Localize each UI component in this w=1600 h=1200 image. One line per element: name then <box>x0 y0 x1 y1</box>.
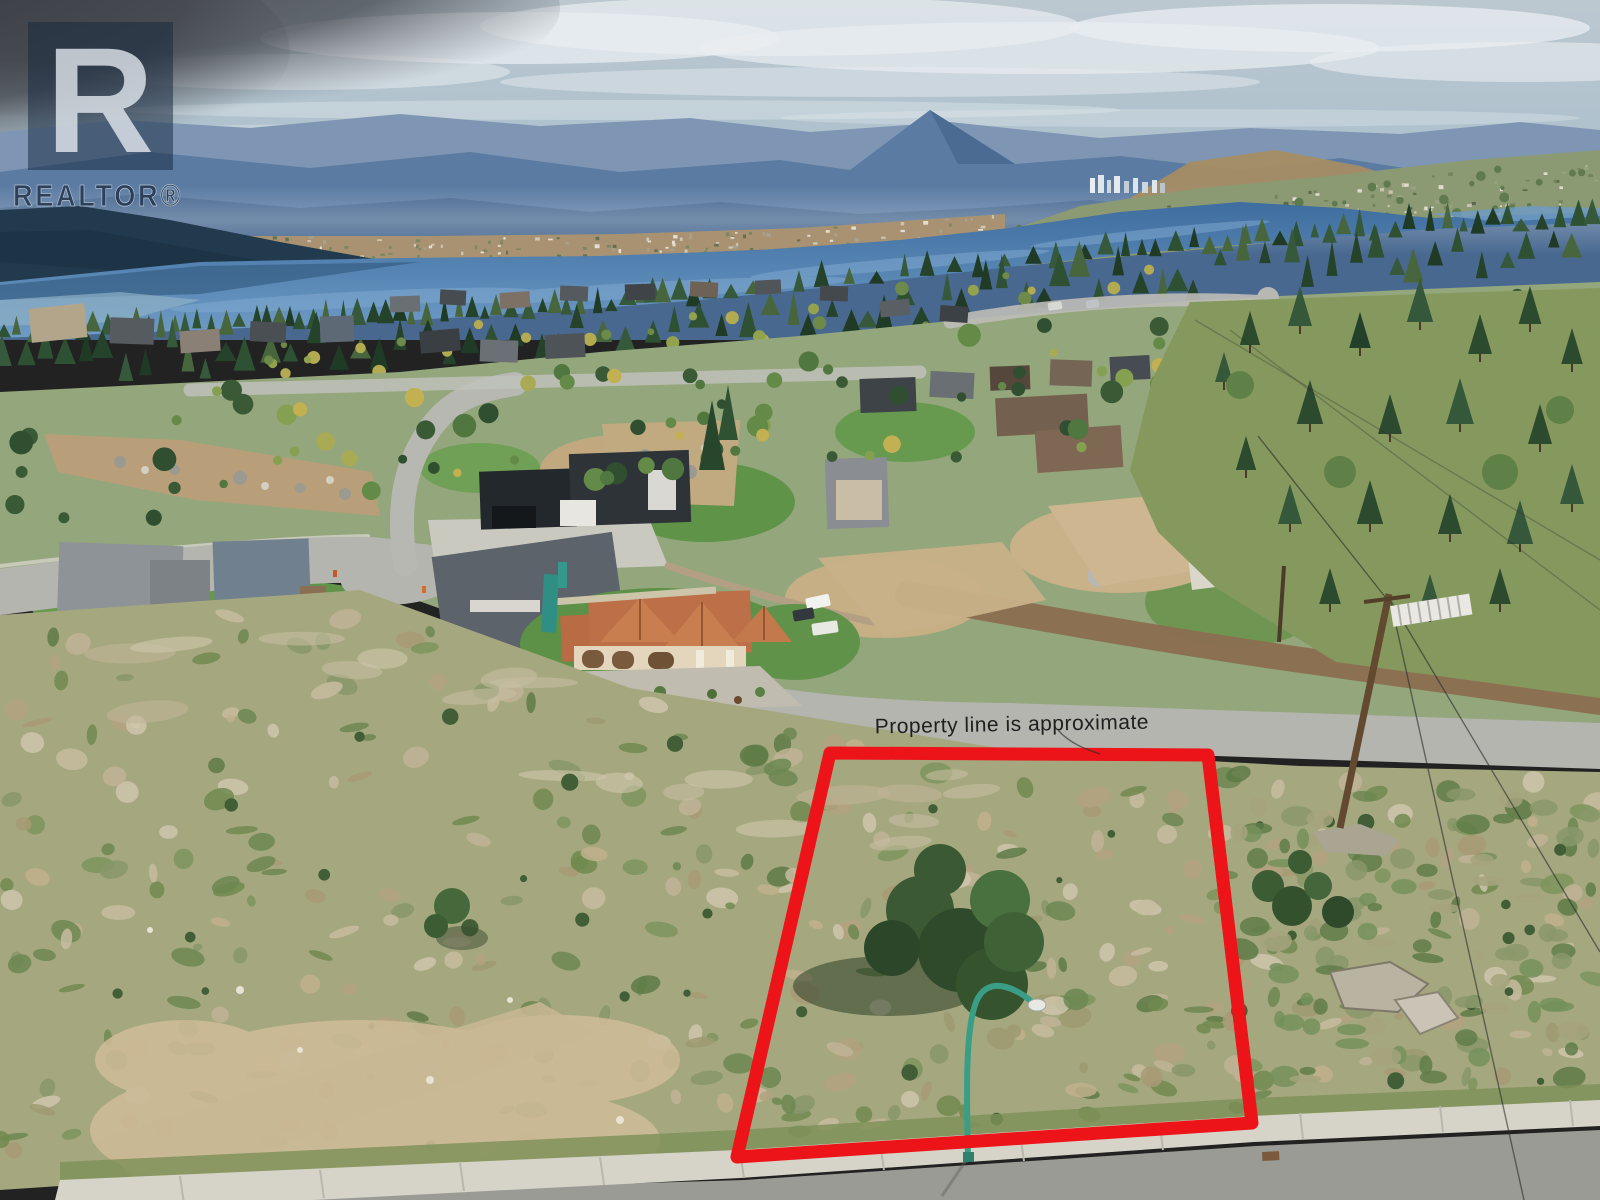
manhole <box>1262 1151 1279 1161</box>
property-annotation-text: Property line is approximate <box>875 711 1150 739</box>
realtor-logo-letter: R <box>46 16 154 184</box>
aerial-photo: Property line is approximate R REALTOR® <box>0 0 1600 1200</box>
realtor-label: REALTOR® <box>13 178 183 213</box>
aerial-photo-canvas: Property line is approximate R REALTOR® <box>0 0 1600 1200</box>
realtor-watermark: R REALTOR® <box>13 16 183 213</box>
lamp-head <box>1028 999 1046 1011</box>
